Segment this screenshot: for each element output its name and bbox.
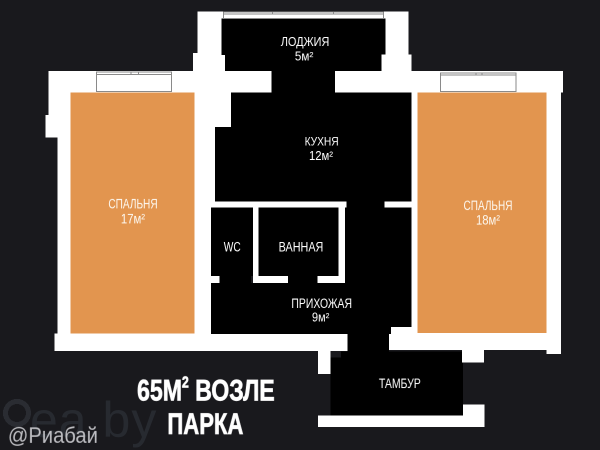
svg-text:ВАННАЯ: ВАННАЯ bbox=[279, 239, 324, 254]
svg-text:18м²: 18м² bbox=[476, 213, 500, 228]
svg-text:ЛОДЖИЯ: ЛОДЖИЯ bbox=[281, 34, 330, 49]
svg-text:СПАЛЬНЯ: СПАЛЬНЯ bbox=[108, 196, 157, 211]
svg-text:WC: WC bbox=[224, 239, 241, 254]
svg-text:СПАЛЬНЯ: СПАЛЬНЯ bbox=[464, 198, 513, 213]
svg-text:17м²: 17м² bbox=[121, 211, 146, 226]
svg-text:65М2 ВОЗЛЕ: 65М2 ВОЗЛЕ bbox=[137, 375, 275, 408]
svg-text:ТАМБУР: ТАМБУР bbox=[379, 376, 421, 391]
svg-text:КУХНЯ: КУХНЯ bbox=[305, 135, 339, 149]
svg-text:ПАРКА: ПАРКА bbox=[167, 408, 243, 441]
svg-text:5м²: 5м² bbox=[295, 48, 314, 63]
svg-text:9м²: 9м² bbox=[312, 309, 330, 324]
svg-text:@Риабай: @Риабай bbox=[8, 423, 98, 448]
svg-text:12м²: 12м² bbox=[309, 149, 333, 163]
